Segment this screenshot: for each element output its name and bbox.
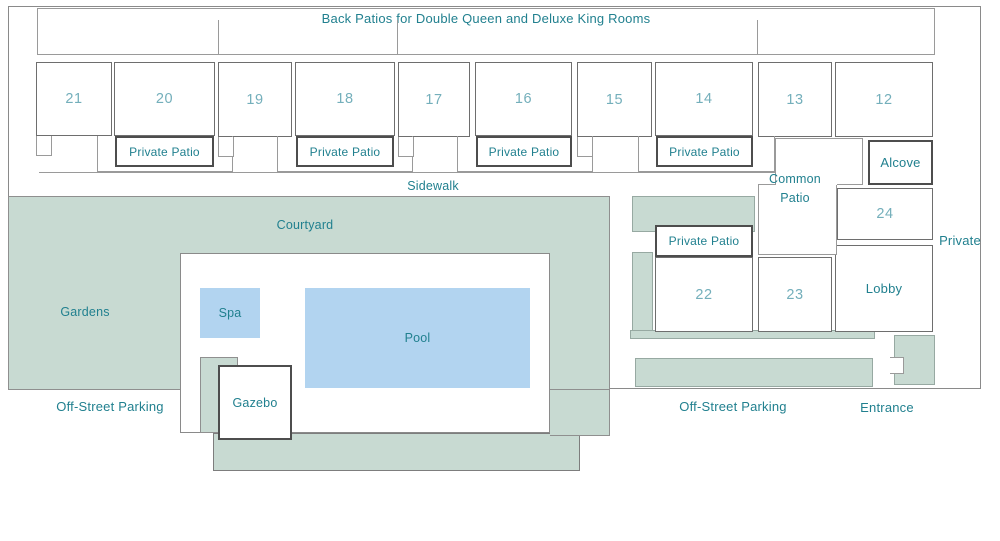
gazebo: Gazebo bbox=[218, 365, 292, 440]
room-16-number: 16 bbox=[515, 91, 532, 107]
room-21-number: 21 bbox=[65, 91, 82, 107]
entrance-label: Entrance bbox=[837, 400, 937, 415]
room-23: 23 bbox=[758, 257, 832, 332]
sidewalk-label: Sidewalk bbox=[393, 179, 473, 193]
room-15-number: 15 bbox=[606, 92, 623, 108]
gardens-label: Gardens bbox=[25, 305, 145, 319]
gazebo-label: Gazebo bbox=[233, 396, 278, 410]
off-street-parking-left-label: Off-Street Parking bbox=[40, 399, 180, 414]
patio-divider bbox=[218, 20, 219, 55]
floor-plan: Back Patios for Double Queen and Deluxe … bbox=[0, 0, 1000, 541]
entrance-notch bbox=[890, 357, 904, 374]
room-21: 21 bbox=[36, 62, 112, 136]
room-14-number: 14 bbox=[695, 91, 712, 107]
room-22: 22 bbox=[655, 257, 753, 332]
room-24-number: 24 bbox=[876, 206, 893, 222]
private-patio-16: Private Patio bbox=[476, 136, 572, 167]
courtyard-label: Courtyard bbox=[245, 218, 365, 232]
entry-notch-21 bbox=[36, 136, 52, 156]
private-patio-16-label: Private Patio bbox=[489, 145, 560, 159]
entry-notch-17 bbox=[398, 137, 414, 157]
alcove: Alcove bbox=[868, 140, 933, 185]
pool-label: Pool bbox=[405, 331, 431, 345]
walkway-left-of-22 bbox=[632, 252, 653, 332]
lobby-label: Lobby bbox=[866, 281, 902, 296]
private-label: Private bbox=[934, 233, 986, 248]
room-24: 24 bbox=[837, 188, 933, 240]
sidewalk-line bbox=[39, 172, 775, 173]
back-patios-title: Back Patios for Double Queen and Deluxe … bbox=[37, 11, 935, 26]
room-13-number: 13 bbox=[786, 92, 803, 108]
private-patio-22-label: Private Patio bbox=[669, 234, 740, 248]
off-street-parking-right-label: Off-Street Parking bbox=[663, 399, 803, 414]
private-patio-22: Private Patio bbox=[655, 225, 753, 257]
room-13: 13 bbox=[758, 62, 832, 137]
spa-label: Spa bbox=[219, 306, 242, 320]
pool-area: Pool bbox=[305, 288, 530, 388]
entry-notch-19 bbox=[218, 137, 234, 157]
room-15: 15 bbox=[577, 62, 652, 137]
patio-divider bbox=[397, 20, 398, 55]
lobby: Lobby bbox=[835, 245, 933, 332]
parking-walkway-strip bbox=[635, 358, 873, 387]
private-patio-20: Private Patio bbox=[115, 136, 214, 167]
alcove-label: Alcove bbox=[880, 155, 920, 170]
private-patio-14: Private Patio bbox=[656, 136, 753, 167]
room-12-number: 12 bbox=[875, 92, 892, 108]
room-12: 12 bbox=[835, 62, 933, 137]
common-patio-edge bbox=[837, 184, 863, 185]
patio-divider bbox=[757, 20, 758, 55]
spa-area: Spa bbox=[200, 288, 260, 338]
room-23-number: 23 bbox=[786, 287, 803, 303]
private-patio-20-label: Private Patio bbox=[129, 145, 200, 159]
private-patio-18-label: Private Patio bbox=[310, 145, 381, 159]
private-patio-14-label: Private Patio bbox=[669, 145, 740, 159]
room-19: 19 bbox=[218, 62, 292, 137]
room-16: 16 bbox=[475, 62, 572, 136]
room-17: 17 bbox=[398, 62, 470, 137]
room-18: 18 bbox=[295, 62, 395, 136]
room-18-number: 18 bbox=[336, 91, 353, 107]
room-19-number: 19 bbox=[246, 92, 263, 108]
private-patio-18: Private Patio bbox=[296, 136, 394, 167]
room-22-number: 22 bbox=[695, 287, 712, 303]
room-17-number: 17 bbox=[425, 92, 442, 108]
room-20-number: 20 bbox=[156, 91, 173, 107]
entry-notch-15 bbox=[577, 137, 593, 157]
room-14: 14 bbox=[655, 62, 753, 136]
common-patio-label: Common Patio bbox=[763, 170, 827, 209]
room-20: 20 bbox=[114, 62, 215, 136]
courtyard-right-extension bbox=[550, 390, 610, 436]
